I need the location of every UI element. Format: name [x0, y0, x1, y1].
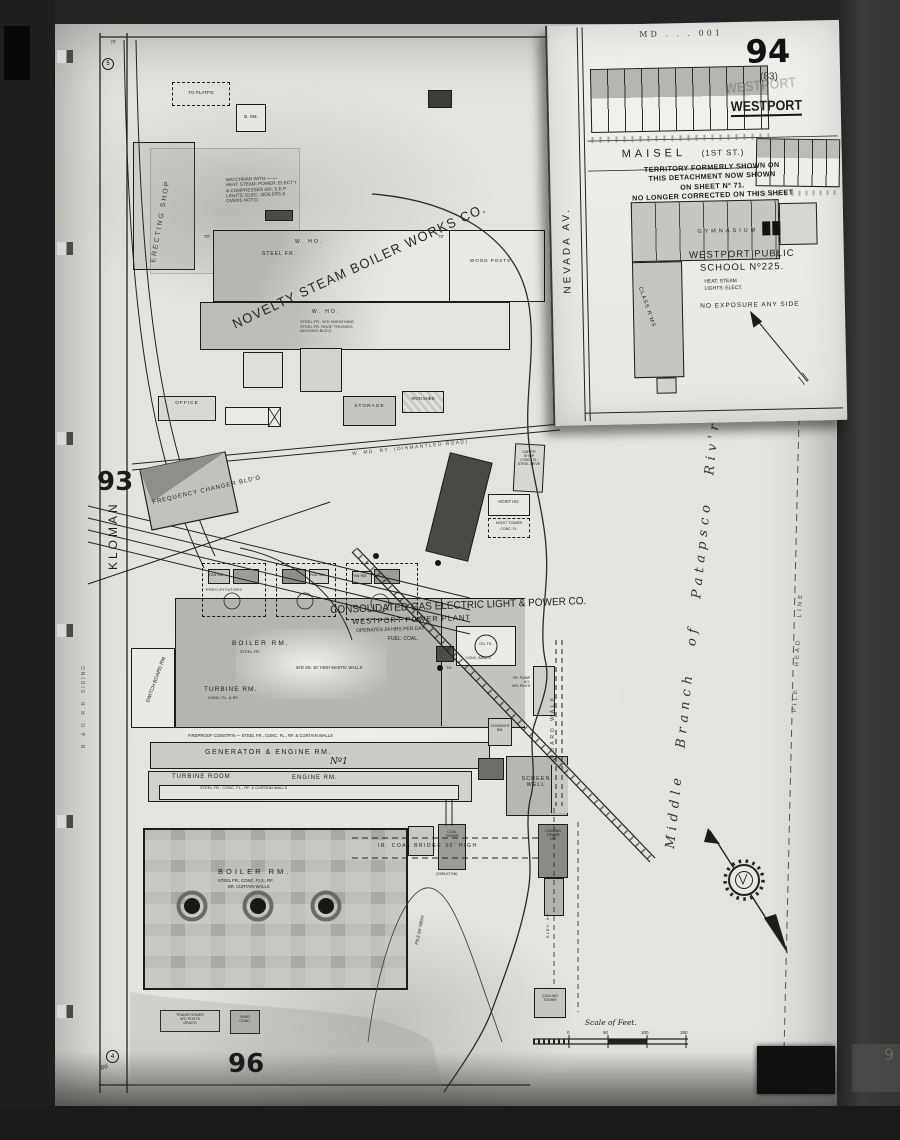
ct2-line: Nº2 [538, 837, 568, 841]
boiler-big-sub2: BR. CURTAIN WALLS [228, 885, 270, 890]
fan-rm-label-2: FAN RM. [310, 573, 325, 577]
novelty-who: W. HO. [295, 240, 323, 246]
watchman-note: WATCHMAN WITH —·— HEAT: STEAM; POWER: EL… [226, 175, 298, 204]
th-label: TH. [446, 666, 452, 671]
power-fuel: FUEL: COAL. [388, 637, 419, 643]
iron-shed-label: IRON SHED [402, 397, 444, 402]
building-coaling-tower-2-leg [544, 878, 564, 916]
building-storage [343, 396, 396, 426]
building-boiler-annex [408, 826, 434, 856]
sanborn-map-photo: 5 4 [0, 0, 900, 1140]
coal-tower-label: COAL TOWER [438, 830, 466, 838]
pump-house-label: FR. PUMP HO. W'D PILES [504, 676, 530, 688]
school-lights: LIGHTS: ELECT. [704, 286, 742, 293]
ct4-line: TOWER [534, 998, 566, 1002]
building-small-dark [428, 90, 452, 108]
condenser-label: CONDEN'R RM. [489, 724, 511, 732]
mastic-note: W'D SD. 30' HIGH MASTIC WALLS [296, 666, 362, 671]
turbine-rm-sub: CONC. FL. & RF. [208, 696, 239, 701]
inset-sheet-94: MD . . . 001 94 (83) WESTPORT WESTPORT M… [545, 20, 847, 426]
elev-label: ELEV. 60' [546, 912, 551, 938]
fan-1b [233, 569, 259, 584]
fan-rm-label-3: FAN RM. [352, 574, 367, 578]
boiler-big-label: BOILER RM. [218, 868, 291, 877]
coaling-tower-4-label: COALING TOWER [534, 994, 566, 1002]
screen-well-label: SCREEN WELL [514, 776, 558, 789]
board-walk-label: BOARD WALK [551, 695, 557, 758]
scale-0: 0 [567, 1030, 570, 1035]
circled-mark-4: 4 [106, 1050, 119, 1063]
no1-label: Nº1 [330, 757, 348, 767]
film-right-strip [835, 0, 900, 1140]
fan-2a [282, 569, 306, 584]
oil-tank-label: OIL TK. [474, 642, 498, 647]
street-maisel: MAISEL [622, 147, 687, 161]
sheet-number-93: 93 [97, 468, 133, 498]
building-mid [225, 407, 269, 425]
precipitators-label: PRECIPITATORS [206, 588, 242, 592]
street-nevada: NEVADA AV. [561, 207, 574, 294]
territory-note: TERRITORY FORMERLY SHOWN ON THIS DETACHM… [600, 158, 825, 204]
film-left-strip [0, 0, 55, 1140]
hoist-house-label: HOIST HO. [488, 500, 530, 505]
coal-bridge-label: IR. COAL BRIDGE 30' HIGH [378, 844, 478, 850]
street-maisel-sub: (1ST ST.) [702, 148, 745, 158]
building-hoist-house [488, 494, 530, 516]
turbine-rm-label: TURBINE RM. [204, 686, 257, 693]
shed-label: SHED CONC. [230, 1015, 260, 1023]
md-code: MD . . . 001 [639, 28, 723, 39]
novelty-sheathing: STEEL FR., W'D SHEATHING STEEL FR. ROOF … [300, 320, 354, 334]
school-annex [779, 202, 818, 245]
screen-line: WELL [514, 782, 558, 788]
inset-sheet-number: 94 [745, 33, 790, 71]
skeleton-label: (SKELETON) [436, 872, 458, 876]
scale-100: 100 [641, 1030, 649, 1035]
scale-title: Scale of Feet. [585, 1019, 637, 1028]
film-notch [4, 26, 30, 80]
house-numbers-smudge [591, 133, 769, 143]
street-kloman: KLOMAN [107, 501, 121, 570]
westport-title: WESTPORT [731, 97, 803, 118]
boiler-upper-sub: STEEL FR. [240, 650, 260, 655]
building-boiler-house [143, 828, 408, 990]
school-left-wing [632, 261, 684, 378]
transformer-line: GRAV'D [160, 1021, 220, 1025]
condenser-line: RM. [489, 728, 511, 732]
shed-line: CONC. [230, 1019, 260, 1023]
building-office [158, 396, 216, 421]
film-bottom-strip [0, 1106, 900, 1140]
office-label: OFFICE [158, 401, 216, 407]
building-x-tower [268, 407, 281, 427]
carp-line: STEEL AB'VE [515, 462, 543, 466]
blacksmith-label: B. SM. [236, 114, 266, 119]
bo-siding-label: B. & O. R.R. SIDING [82, 664, 88, 748]
school-exposure: NO EXPOSURE ANY SIDE [675, 300, 825, 311]
boiler-upper-label: BOILER RM. [232, 640, 290, 647]
carpenter-label: CARP'R SHOP CONC. FL. STEEL AB'VE [515, 450, 543, 467]
circled-5-label: 5 [106, 61, 109, 67]
building-iron-shed [402, 391, 444, 413]
hoist-tower-sub: CONC. FL. [488, 527, 530, 531]
fireproof-note: FIREPROOF CONSTR'N — STEEL FR., CONC. FL… [188, 734, 333, 739]
dim-70b: 70' [438, 234, 444, 239]
building-novelty-upper [213, 230, 545, 302]
building-novelty-small-1 [243, 352, 283, 388]
building-dark-small [436, 646, 454, 662]
turbine-room-label: TURBINE ROOM [172, 774, 231, 781]
school-name-1: WESTPORT PUBLIC [670, 248, 814, 262]
strip-sub: STEEL FR., CONC. FL., RF. & CURTAIN WALL… [200, 786, 287, 791]
scale-150: 150 [680, 1030, 688, 1035]
transformer-label: TRANSFORMER W'D POSTS GRAV'D [160, 1013, 220, 1025]
school-small-building [656, 377, 676, 393]
sheath-line: ADJOIN'G BLD'G [300, 329, 354, 334]
school-north-arrow [750, 310, 809, 386]
scale-50: 50 [603, 1030, 608, 1035]
coaling-tower-2-label: COALING TOWER Nº2 [538, 829, 568, 841]
building-coaling-tower-4 [534, 988, 566, 1018]
circled-4-label: 4 [111, 1054, 114, 1060]
platform-label: TO PLATF'D [174, 90, 228, 95]
circled-mark-5: 5 [102, 58, 114, 70]
generator-label: GENERATOR & ENGINE RM. [205, 749, 332, 757]
coal-tower-line: TOWER [438, 834, 466, 838]
storage-label: STORAGE [343, 404, 396, 410]
novelty-steelfr: STEEL FR. [262, 252, 296, 258]
novelty-woodposts: WOOD POSTS [470, 258, 511, 263]
engine-rm-label: ENGINE RM. [292, 775, 338, 782]
fan-3b [374, 569, 400, 584]
building-novelty-small-2 [300, 348, 342, 392]
gymnasium-label: GYMNASIUM [697, 228, 758, 236]
school-name-2: SCHOOL Nº225. [670, 261, 814, 275]
sheet-number-96: 96 [228, 1050, 264, 1080]
hoist-tower-label: HOIST TOWER [488, 521, 530, 525]
building-paint-dark [265, 210, 293, 221]
oil-tank-sub: CONC. BANK'D [466, 656, 491, 660]
dim-70-corner: 70' [110, 39, 117, 45]
novelty-who2: W. HO. [312, 310, 340, 316]
building-screenwell-dark [478, 758, 504, 780]
fan-rm-label-1: FAN RM. [209, 573, 224, 577]
pump-line: W'D PILES [504, 684, 530, 688]
dim-70a: 70' [204, 234, 210, 239]
edge-sheet-number: 9 [884, 1046, 894, 1064]
